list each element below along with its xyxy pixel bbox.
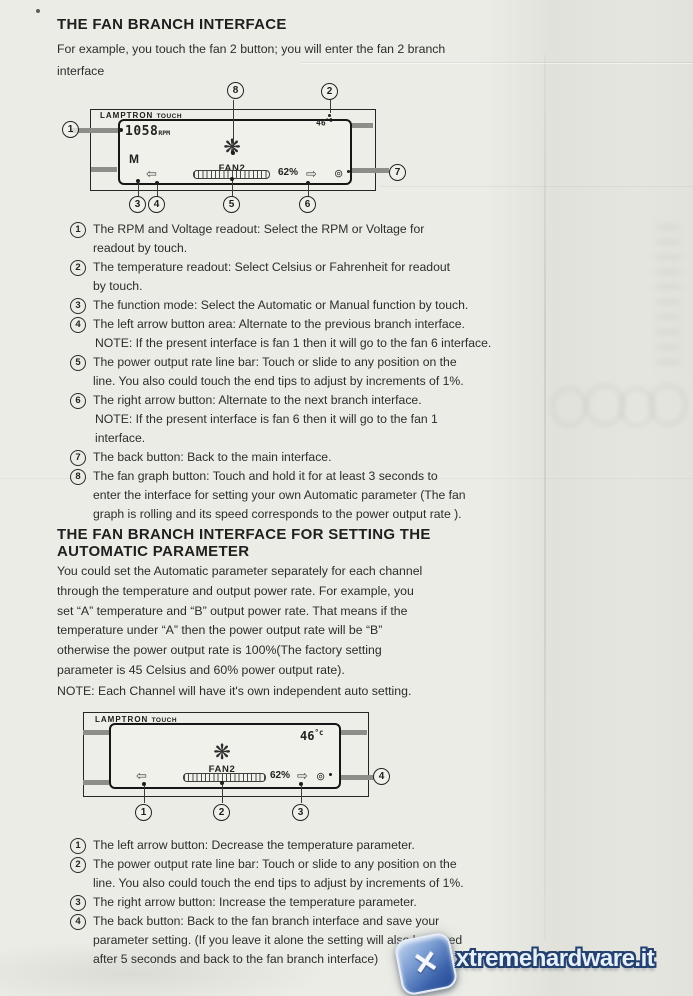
section1-title: THE FAN BRANCH INTERFACE	[57, 16, 287, 33]
bezel-bar	[349, 123, 373, 128]
temp-value: 46	[316, 119, 326, 128]
leader-dot	[328, 114, 331, 117]
section1-intro: For example, you touch the fan 2 button;…	[57, 38, 497, 82]
leader-dot	[136, 179, 140, 183]
auto-parameter-diagram: LAMPTRON TOUCH 46°c ❋ FAN2 ⇦ 62% ⇨ ⊚ 1 2…	[0, 700, 430, 836]
callout-3: 3	[292, 804, 309, 821]
leader-dot	[299, 782, 303, 786]
bezel-bar	[337, 730, 367, 735]
bleed-through-mark	[648, 383, 688, 427]
leader-line	[232, 180, 233, 197]
right-arrow-icon: ⇨	[306, 168, 317, 181]
callout-4: 4	[148, 196, 165, 213]
section2-paragraph: You could set the Automatic parameter se…	[57, 562, 517, 681]
xtremehardware-logo: ✕	[393, 931, 459, 996]
list-item-text: The power output rate line bar: Touch or…	[93, 353, 464, 391]
callout-8: 8	[227, 82, 244, 99]
callout-2: 2	[321, 83, 338, 100]
leader-dot	[231, 151, 235, 155]
item-number-badge: 3	[70, 298, 86, 314]
callout-2: 2	[213, 804, 230, 821]
back-icon: ⊚	[334, 168, 343, 179]
leader-dot	[119, 128, 123, 132]
section1-list: 1 The RPM and Voltage readout: Select th…	[70, 220, 540, 524]
watermark-text: xtremehardware.it	[456, 945, 654, 973]
leader-line	[138, 182, 139, 197]
item-number-badge: 1	[70, 838, 86, 854]
item-number-badge: 4	[70, 317, 86, 333]
bezel-bar	[83, 730, 109, 735]
list-item: 7 The back button: Back to the main inte…	[70, 448, 540, 467]
list-item-text: The temperature readout: Select Celsius …	[93, 258, 450, 296]
scan-speck	[36, 9, 40, 13]
temp-value: 46	[300, 729, 314, 743]
temp-unit: °c	[314, 728, 323, 737]
left-arrow-icon: ⇦	[146, 168, 157, 181]
temperature-readout: 46°C	[316, 118, 332, 128]
callout-1: 1	[135, 804, 152, 821]
section2-note: NOTE: Each Channel will have it's own in…	[57, 682, 517, 702]
left-arrow-icon: ⇦	[136, 770, 147, 783]
leader-dot	[142, 782, 146, 786]
leader-bar	[349, 168, 389, 173]
bezel-bar	[91, 167, 117, 172]
callout-1: 1	[62, 121, 79, 138]
callout-3: 3	[129, 196, 146, 213]
leader-line	[144, 786, 145, 803]
fan-icon: ❋	[200, 742, 244, 763]
leader-dot	[306, 181, 310, 185]
list-item-text: The left arrow button: Decrease the temp…	[93, 836, 415, 855]
leader-dot	[155, 181, 159, 185]
list-item: 3 The right arrow button: Increase the t…	[70, 893, 540, 912]
leader-line	[301, 786, 302, 803]
item-number-badge: 7	[70, 450, 86, 466]
list-item: 2 The temperature readout: Select Celsiu…	[70, 258, 540, 296]
temperature-readout: 46°c	[300, 728, 323, 743]
leader-dot	[230, 177, 234, 181]
callout-4: 4	[373, 768, 390, 785]
item-number-badge: 2	[70, 857, 86, 873]
leader-dot	[220, 781, 224, 785]
note-line: NOTE: If the present interface is fan 6 …	[95, 410, 540, 448]
callout-7: 7	[389, 164, 406, 181]
rpm-unit: RPM	[158, 129, 170, 137]
list-item: 1 The RPM and Voltage readout: Select th…	[70, 220, 540, 258]
list-item: 6 The right arrow button: Alternate to t…	[70, 391, 540, 410]
list-item: 5 The power output rate line bar: Touch …	[70, 353, 540, 391]
callout-5: 5	[223, 196, 240, 213]
list-item-text: The function mode: Select the Automatic …	[93, 296, 468, 315]
right-arrow-icon: ⇨	[297, 770, 308, 783]
watermark: ✕ xtremehardware.it	[394, 930, 693, 996]
list-item-text: The right arrow button: Alternate to the…	[93, 391, 422, 410]
item-number-badge: 4	[70, 914, 86, 930]
list-item-text: The RPM and Voltage readout: Select the …	[93, 220, 424, 258]
bleed-through-mark	[550, 386, 588, 428]
list-item: 1 The left arrow button: Decrease the te…	[70, 836, 540, 855]
list-item-text: The back button: Back to the main interf…	[93, 448, 331, 467]
percent-label: 62%	[278, 167, 298, 178]
list-item-text: The right arrow button: Increase the tem…	[93, 893, 417, 912]
item-number-badge: 1	[70, 222, 86, 238]
fold-line-vertical	[544, 55, 546, 940]
list-item-text: The power output rate line bar: Touch or…	[93, 855, 464, 893]
note-line: NOTE: If the present interface is fan 1 …	[95, 334, 540, 353]
rpm-readout: 1058RPM	[125, 124, 170, 139]
back-icon: ⊚	[316, 771, 325, 782]
leader-line	[222, 785, 223, 803]
fan-branch-interface-diagram: LAMPTRON TOUCH 1058RPM 46°C M ⇦ ❋ FAN2 6…	[0, 80, 430, 222]
mode-indicator: M	[129, 152, 139, 166]
list-item-text: The left arrow button area: Alternate to…	[93, 315, 465, 334]
item-number-badge: 2	[70, 260, 86, 276]
item-number-badge: 3	[70, 895, 86, 911]
item-number-badge: 6	[70, 393, 86, 409]
item-number-badge: 8	[70, 469, 86, 485]
leader-dot	[329, 773, 332, 776]
leader-line	[233, 100, 234, 152]
x-icon: ✕	[411, 947, 441, 981]
temp-unit: °C	[326, 118, 333, 124]
power-output-bar	[183, 773, 266, 782]
list-item-text: The fan graph button: Touch and hold it …	[93, 467, 466, 524]
scanned-manual-page: THE FAN BRANCH INTERFACE For example, yo…	[0, 0, 693, 996]
list-item: 3 The function mode: Select the Automati…	[70, 296, 540, 315]
rpm-value: 1058	[125, 124, 158, 139]
percent-label: 62%	[270, 770, 290, 781]
list-item: 2 The power output rate line bar: Touch …	[70, 855, 540, 893]
bleed-through-column	[655, 215, 681, 365]
leader-dot	[347, 170, 350, 173]
bezel-bar	[83, 780, 109, 785]
list-item: 4 The left arrow button area: Alternate …	[70, 315, 540, 334]
item-number-badge: 5	[70, 355, 86, 371]
callout-6: 6	[299, 196, 316, 213]
list-item: 8 The fan graph button: Touch and hold i…	[70, 467, 540, 524]
section2-title: THE FAN BRANCH INTERFACE FOR SETTING THE…	[57, 526, 517, 560]
leader-line	[330, 100, 331, 113]
